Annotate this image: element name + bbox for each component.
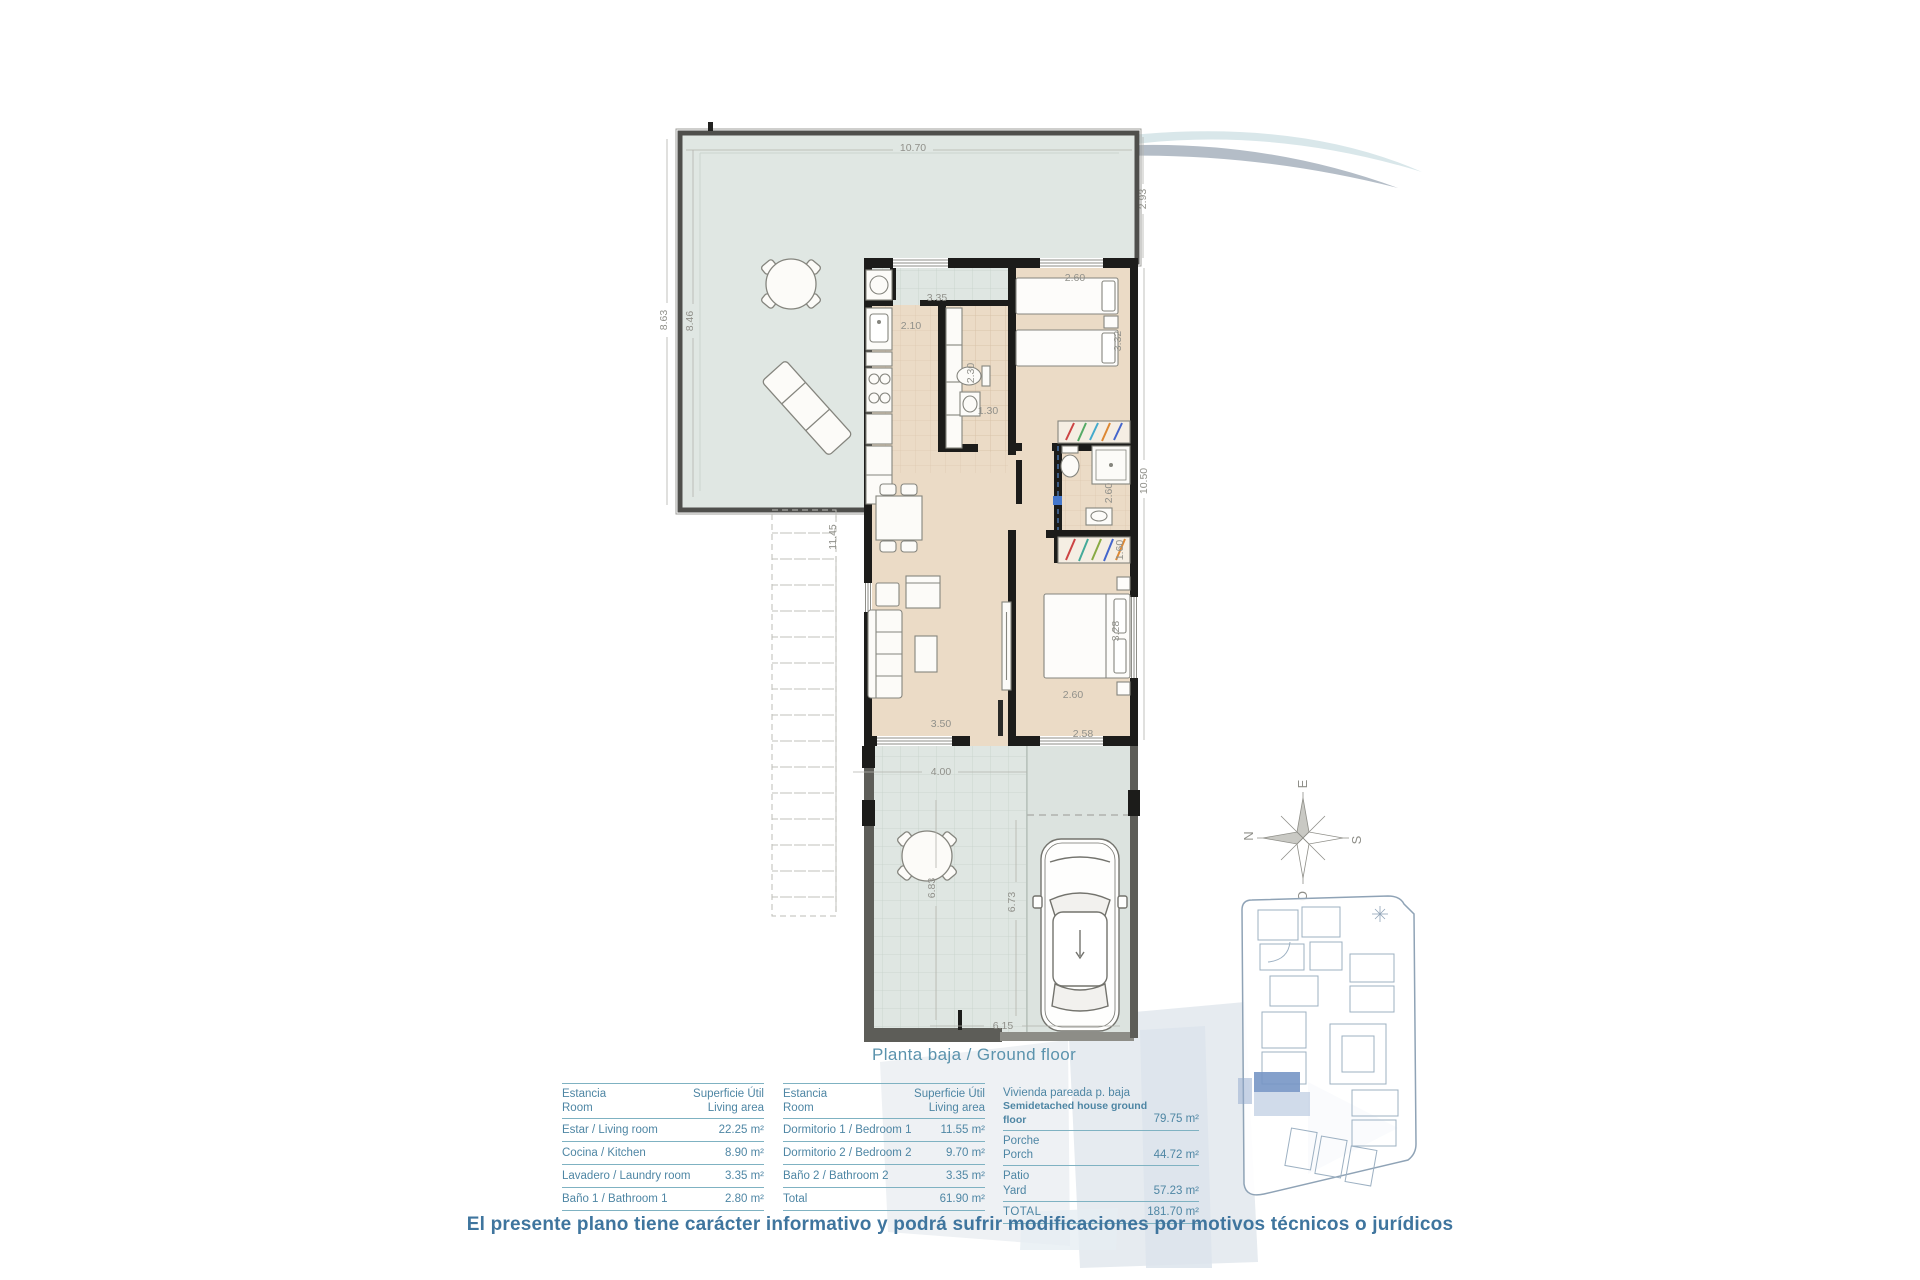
compass-north-label: N: [1241, 831, 1256, 840]
table-row: Dormitorio 1 / Bedroom 111.55 m²: [783, 1119, 985, 1142]
dim-label: 8.63: [658, 310, 670, 331]
dim-label: 2.60: [1063, 689, 1084, 701]
table-row: Patio Yard57.23 m²: [1003, 1166, 1199, 1202]
car-icon: [1033, 839, 1127, 1031]
floor-plan-page: 10.70 2.93 8.63 8.46 11.45 3.35 2.10 1.3…: [0, 0, 1920, 1280]
header-es: Superficie Útil: [914, 1087, 985, 1101]
dim-label: 1.60: [1114, 540, 1126, 561]
dim-label: 3.28: [1110, 621, 1122, 642]
header-en: Living area: [693, 1101, 764, 1115]
dim-label: 11.45: [827, 524, 839, 550]
table-row: Porche Porch44.72 m²: [1003, 1131, 1199, 1167]
dim-label: 6.73: [1006, 892, 1018, 913]
header-es: Estancia: [783, 1087, 827, 1101]
header-es: Superficie Útil: [693, 1087, 764, 1101]
table-row: Cocina / Kitchen8.90 m²: [562, 1142, 764, 1165]
dim-label: 8.46: [684, 311, 696, 332]
header-en: Living area: [914, 1101, 985, 1115]
dim-label: 3.50: [931, 718, 952, 730]
table-header: EstanciaRoom Superficie ÚtilLiving area: [783, 1083, 985, 1119]
dim-label: 6.83: [926, 878, 938, 899]
dim-label: 3.32: [1112, 331, 1124, 352]
table-row: Baño 2 / Bathroom 23.35 m²: [783, 1165, 985, 1188]
dim-label: 2.93: [1137, 189, 1149, 210]
table-row: Baño 1 / Bathroom 12.80 m²: [562, 1188, 764, 1211]
entry-door-leaf: [998, 700, 1003, 736]
compass-east-label: E: [1295, 779, 1310, 788]
header-en: Room: [783, 1101, 827, 1115]
site-plan: [1238, 896, 1416, 1195]
dim-label: 2.30: [965, 363, 977, 384]
dim-label: 6.15: [993, 1020, 1014, 1032]
terrace-table-icon: [760, 259, 821, 310]
dim-label: 2.60: [1065, 272, 1086, 284]
side-yard-strip: [772, 510, 836, 916]
dim-label: 10.70: [900, 142, 926, 154]
compass-icon: E N S O: [1241, 779, 1364, 901]
table-row: Total61.90 m²: [783, 1188, 985, 1211]
dim-label: 2.60: [1103, 483, 1115, 504]
header-en: Room: [562, 1101, 606, 1115]
plan-caption: Planta baja / Ground floor: [872, 1045, 1076, 1065]
area-table-totals: Vivienda pareada p. baja Semidetached ho…: [1003, 1083, 1199, 1224]
table-header: EstanciaRoom Superficie ÚtilLiving area: [562, 1083, 764, 1119]
porch-area: [872, 746, 1027, 1032]
porch-table-icon: [896, 831, 957, 882]
dim-label: 4.00: [931, 766, 952, 778]
header-es: Estancia: [562, 1087, 606, 1101]
table-row: Lavadero / Laundry room3.35 m²: [562, 1165, 764, 1188]
disclaimer-text: El presente plano tiene carácter informa…: [467, 1214, 1453, 1236]
area-table-bedrooms: EstanciaRoom Superficie ÚtilLiving area …: [783, 1083, 985, 1211]
table-row: Estar / Living room22.25 m²: [562, 1119, 764, 1142]
dim-label: 2.58: [1073, 728, 1094, 740]
dim-label: 2.10: [901, 320, 922, 332]
table-row: Dormitorio 2 / Bedroom 29.70 m²: [783, 1142, 985, 1165]
dim-label: 3.35: [927, 292, 948, 304]
dim-label: 10.50: [1138, 468, 1150, 494]
table-row: Vivienda pareada p. baja Semidetached ho…: [1003, 1083, 1199, 1131]
dim-label: 1.30: [978, 405, 999, 417]
wardrobe-bedroom2: [1058, 421, 1130, 443]
area-table-living: EstanciaRoom Superficie ÚtilLiving area …: [562, 1083, 764, 1211]
compass-south-label: S: [1349, 835, 1364, 844]
